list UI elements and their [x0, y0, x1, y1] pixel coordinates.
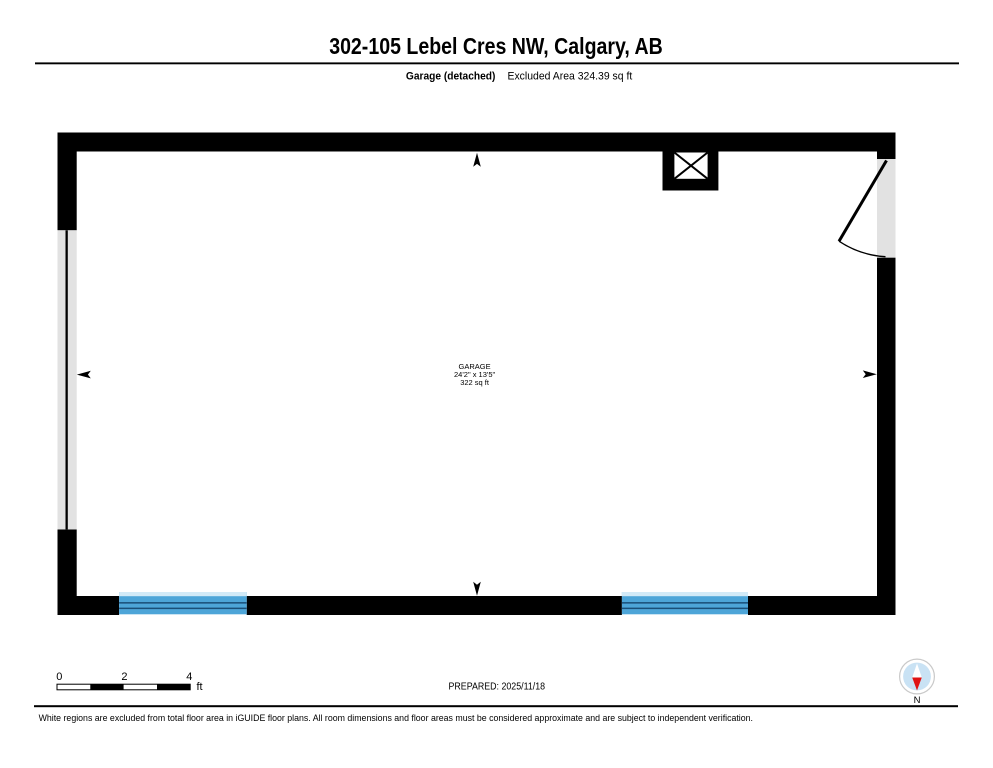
- svg-text:Garage (detached): Garage (detached): [406, 70, 496, 82]
- svg-text:0: 0: [56, 671, 62, 683]
- svg-text:N: N: [914, 695, 921, 706]
- svg-text:Excluded Area 324.39 sq ft: Excluded Area 324.39 sq ft: [508, 70, 633, 82]
- svg-text:PREPARED: 2025/11/18: PREPARED: 2025/11/18: [449, 681, 546, 692]
- svg-text:302-105 Lebel Cres NW, Calgary: 302-105 Lebel Cres NW, Calgary, AB: [329, 33, 663, 59]
- svg-text:ft: ft: [197, 681, 203, 693]
- svg-text:White regions are excluded fro: White regions are excluded from total fl…: [39, 713, 753, 723]
- svg-text:322 sq ft: 322 sq ft: [460, 378, 490, 387]
- svg-text:2: 2: [121, 671, 127, 683]
- svg-text:4: 4: [186, 671, 192, 683]
